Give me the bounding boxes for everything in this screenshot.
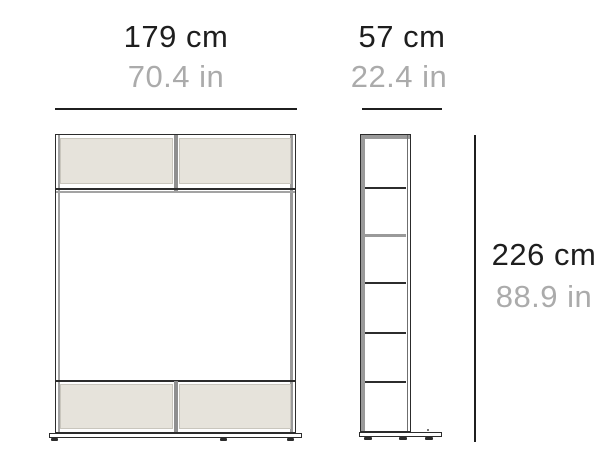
furniture-dimension-diagram: 179 cm 70.4 in 57 cm 22.4 in 226 cm 88.9… — [0, 0, 609, 469]
side-foot-back — [364, 437, 372, 440]
width-dimension-inches: 70.4 in — [55, 61, 297, 92]
height-extension-line — [474, 135, 476, 442]
front-bottom-center-divider — [174, 381, 178, 432]
height-dimension-inches: 88.9 in — [483, 281, 605, 312]
side-shelf-line-5 — [365, 381, 406, 383]
front-view — [55, 134, 296, 433]
front-top-section-line — [56, 188, 295, 190]
front-base-plinth — [49, 433, 302, 438]
front-bottom-right-panel — [179, 384, 292, 429]
front-foot-right — [287, 438, 294, 441]
side-shelf-line-3 — [365, 282, 406, 284]
front-foot-left — [51, 438, 58, 441]
front-top-center-divider — [174, 135, 178, 192]
side-shelf-line-4 — [365, 332, 406, 334]
front-top-right-panel — [179, 138, 292, 184]
side-shelf-line-2 — [365, 234, 406, 237]
front-top-section-shadow-line — [56, 191, 295, 193]
front-bottom-left-panel — [60, 384, 173, 429]
depth-dimension-inches: 22.4 in — [339, 61, 459, 92]
depth-dimension-cm: 57 cm — [342, 21, 462, 52]
depth-extension-line — [362, 108, 442, 110]
front-top-left-panel — [60, 138, 173, 184]
side-shelf-line-1 — [365, 187, 406, 189]
width-dimension-cm: 179 cm — [55, 21, 297, 52]
side-view — [360, 134, 411, 432]
side-top-edge — [361, 135, 410, 139]
height-dimension-cm: 226 cm — [483, 239, 605, 270]
side-base-notch — [427, 429, 429, 431]
side-foot-front — [425, 437, 433, 440]
side-foot-middle — [399, 437, 407, 440]
front-foot-middle — [220, 438, 227, 441]
side-front-frame-line — [407, 135, 409, 431]
width-extension-line — [55, 108, 297, 110]
